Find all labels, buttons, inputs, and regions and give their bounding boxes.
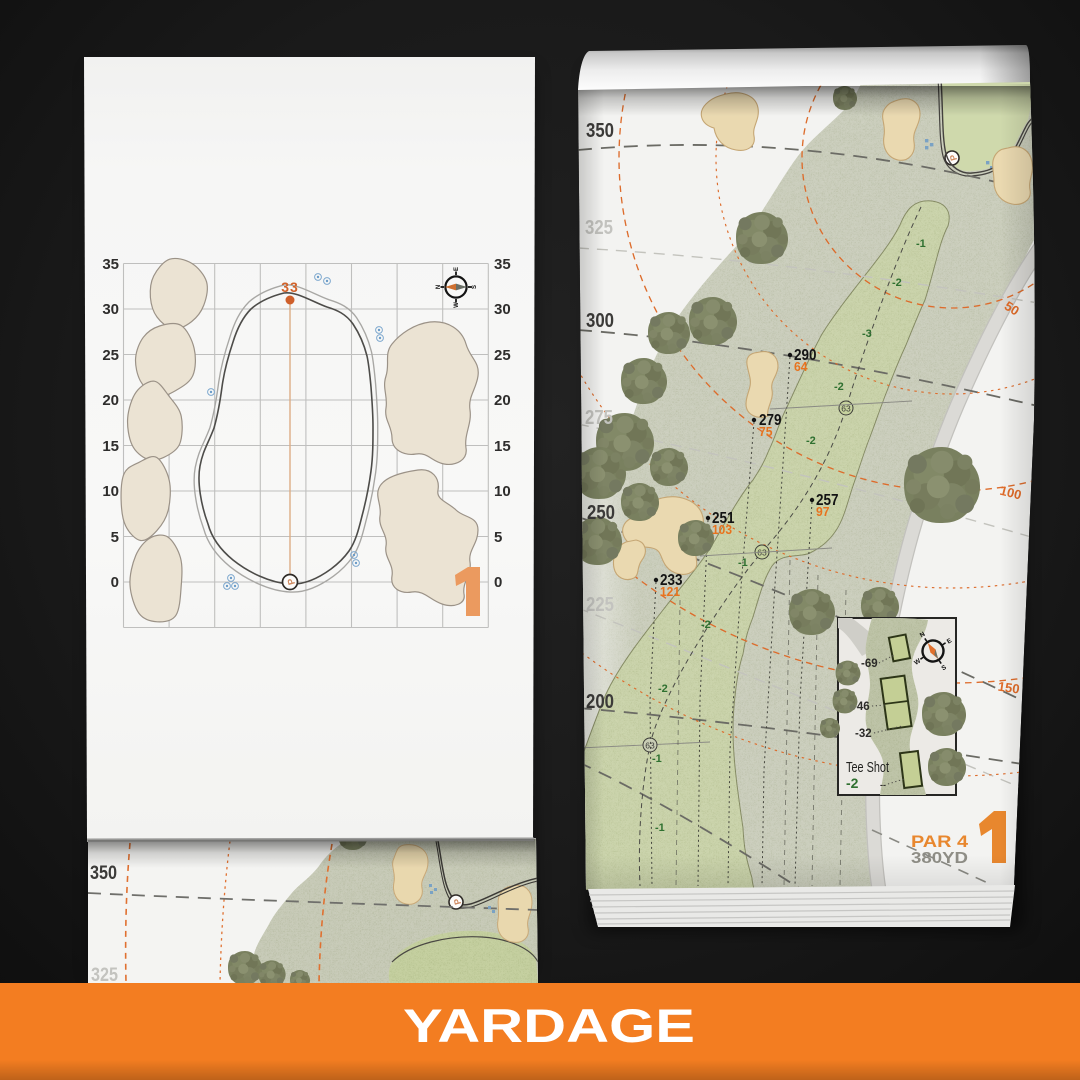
svg-text:10: 10 — [102, 483, 119, 500]
svg-text:-69: -69 — [861, 658, 878, 670]
svg-text:-32: -32 — [855, 728, 872, 740]
svg-text:W: W — [454, 302, 460, 308]
svg-text:0: 0 — [111, 574, 119, 591]
svg-text:-2: -2 — [892, 277, 902, 289]
svg-text:30: 30 — [494, 301, 511, 318]
svg-text:--: -- — [880, 780, 886, 790]
svg-text:-2: -2 — [658, 683, 668, 695]
svg-text:30: 30 — [102, 301, 119, 318]
svg-text:S: S — [472, 285, 478, 289]
svg-text:15: 15 — [494, 438, 511, 455]
svg-text:35: 35 — [494, 256, 511, 273]
svg-text:5: 5 — [111, 529, 119, 546]
svg-text:-2: -2 — [846, 775, 859, 791]
svg-text:YARDAGE: YARDAGE — [403, 999, 695, 1052]
svg-text:N: N — [436, 285, 442, 289]
svg-text:64: 64 — [794, 360, 808, 374]
svg-text:-1: -1 — [655, 822, 665, 834]
svg-text:33: 33 — [281, 279, 299, 295]
svg-text:121: 121 — [660, 585, 680, 599]
svg-text:-2: -2 — [701, 619, 711, 631]
svg-text:-1: -1 — [916, 238, 926, 250]
svg-text:20: 20 — [102, 392, 119, 409]
svg-text:103: 103 — [712, 523, 732, 537]
svg-text:25: 25 — [102, 347, 119, 364]
svg-text:Tee Shot: Tee Shot — [846, 760, 889, 776]
svg-text:97: 97 — [816, 505, 830, 519]
svg-text:325: 325 — [91, 965, 118, 986]
svg-text:-3: -3 — [862, 328, 872, 340]
svg-text:0: 0 — [494, 574, 502, 591]
svg-text:-2: -2 — [834, 381, 844, 393]
svg-text:-2: -2 — [806, 435, 816, 447]
svg-text:75: 75 — [759, 425, 773, 439]
svg-text:PAR 4: PAR 4 — [911, 832, 969, 851]
svg-text:-1: -1 — [738, 557, 748, 569]
svg-text:25: 25 — [494, 347, 511, 364]
svg-text:10: 10 — [494, 483, 511, 500]
svg-text:-1: -1 — [652, 753, 662, 765]
svg-text:5: 5 — [494, 529, 502, 546]
svg-text:20: 20 — [494, 392, 511, 409]
svg-text:E: E — [454, 267, 460, 271]
svg-text:15: 15 — [102, 438, 119, 455]
svg-text:35: 35 — [102, 256, 119, 273]
